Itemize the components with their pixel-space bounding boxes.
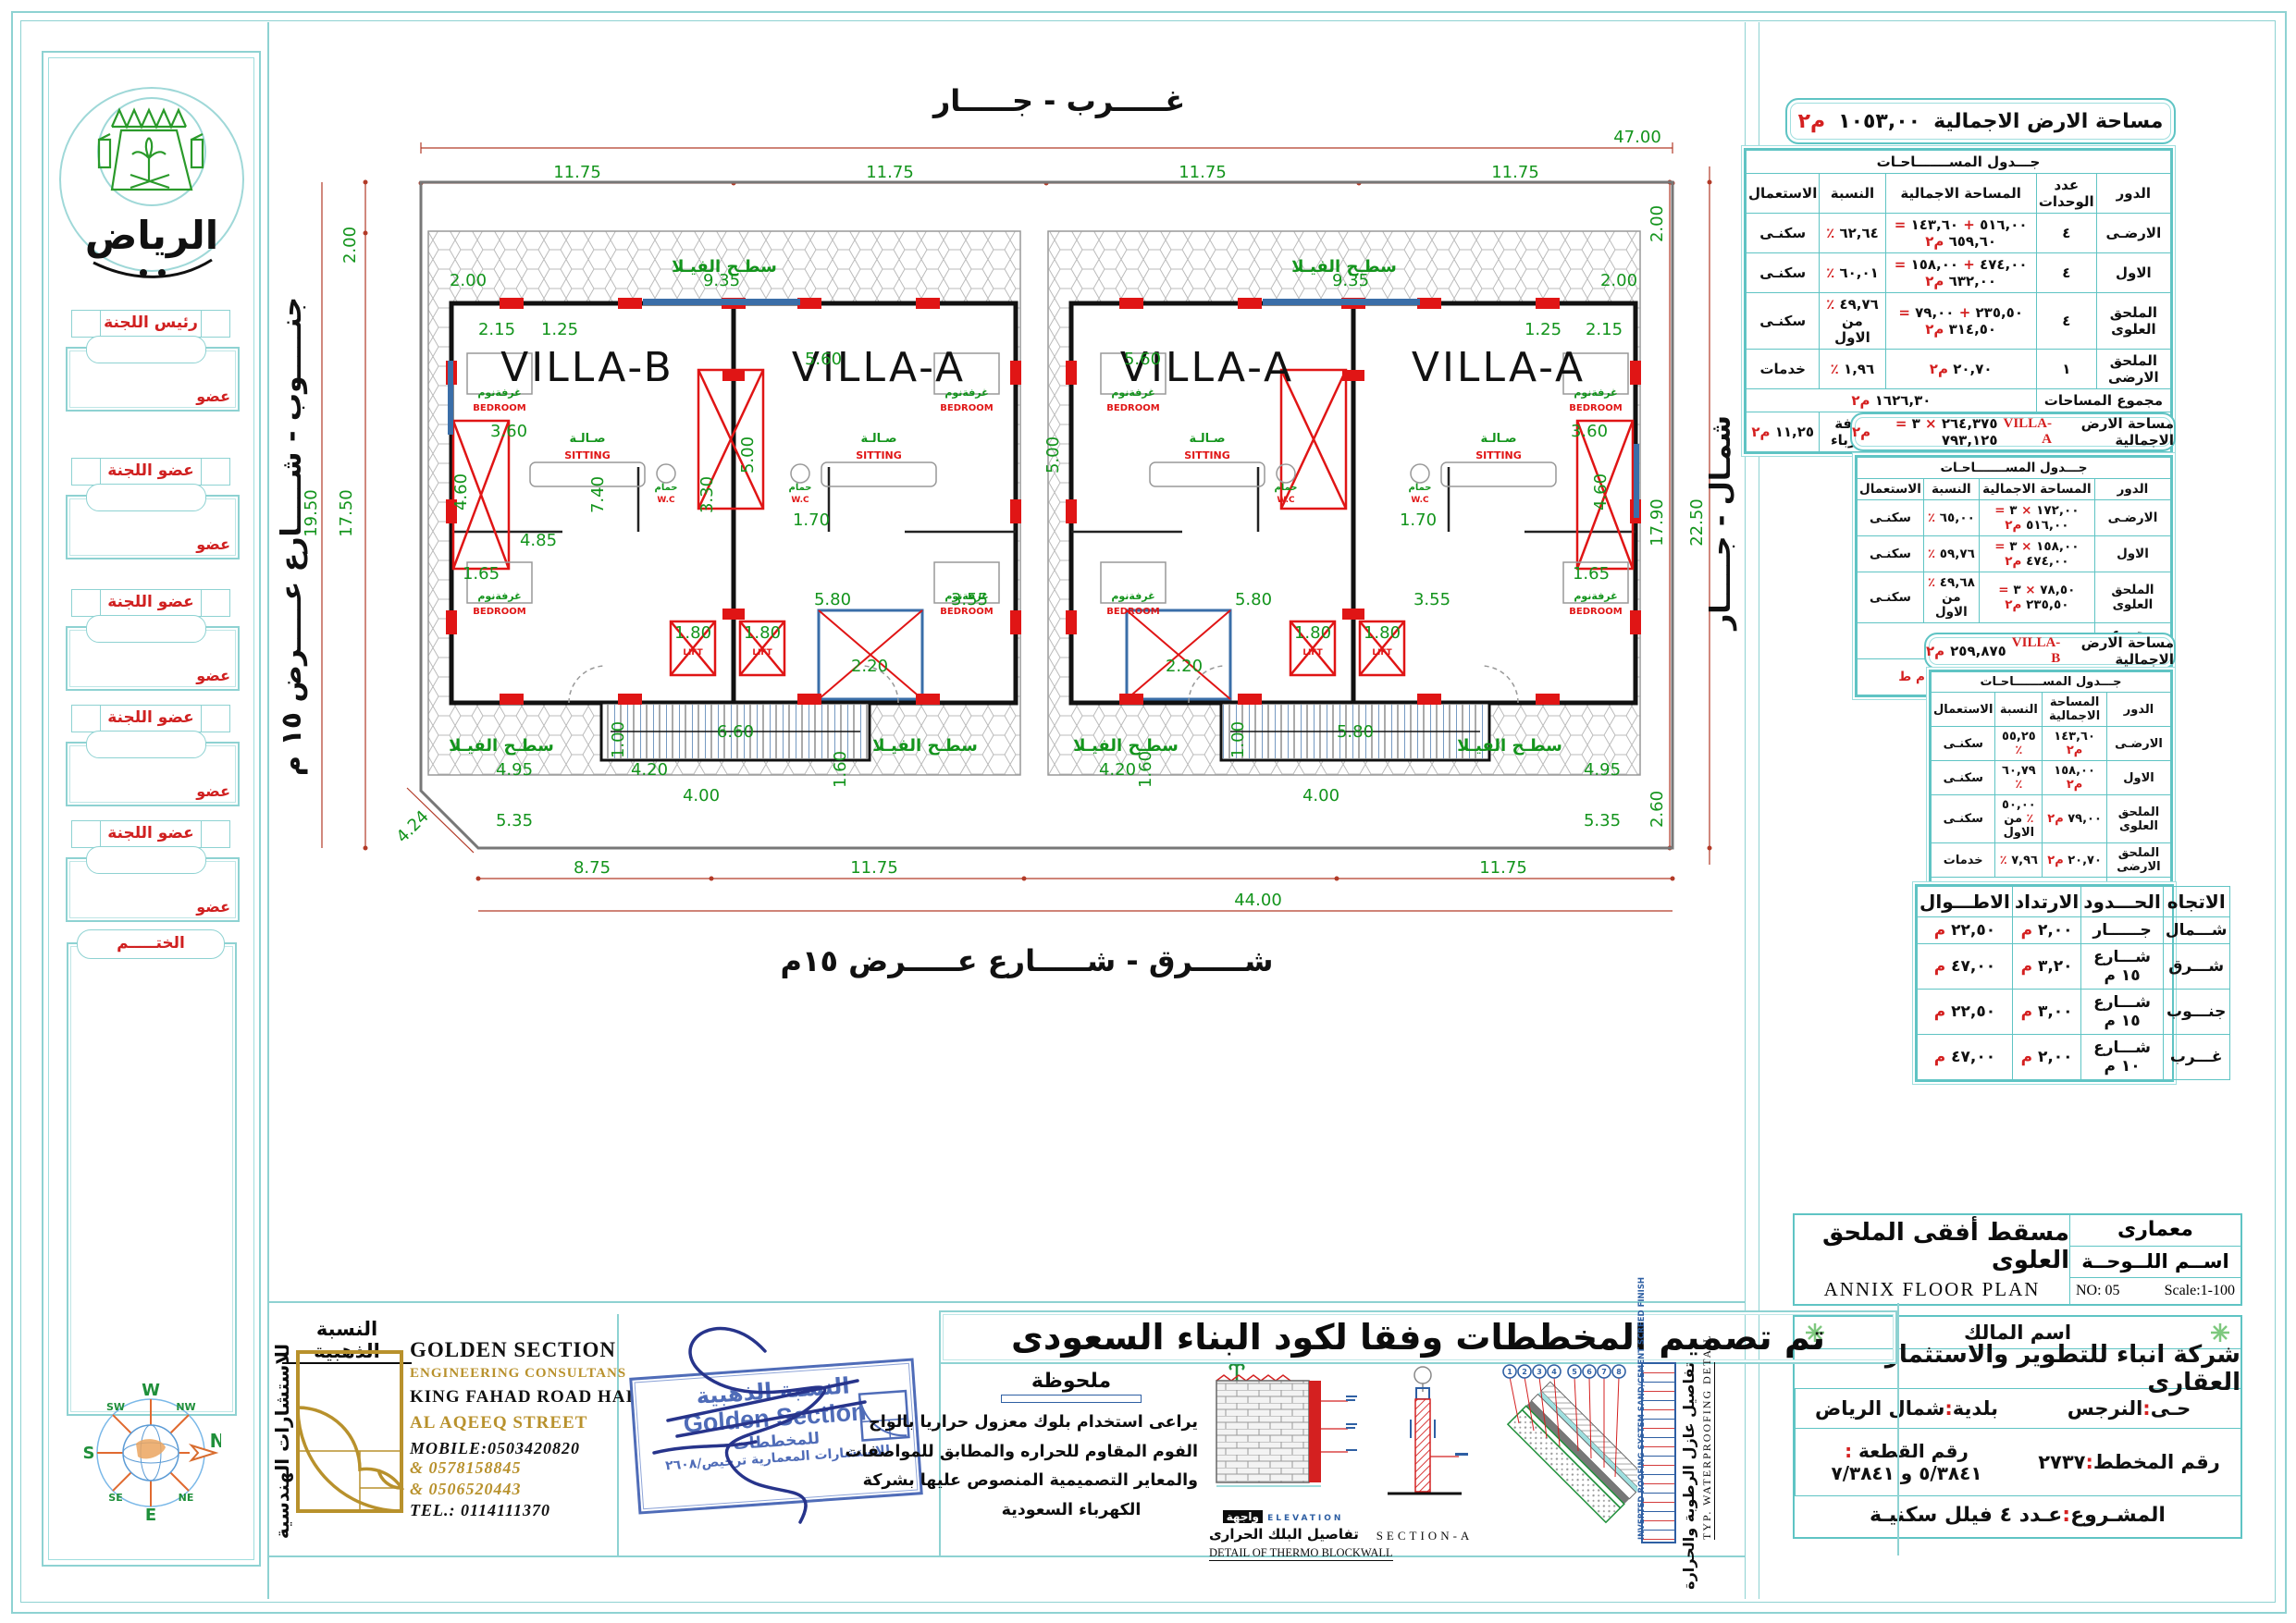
plan-annotation: SITTING	[564, 449, 611, 461]
plan-annotation: 7.40	[588, 476, 608, 513]
svg-text:4: 4	[1551, 1368, 1557, 1376]
plan-annotation: 1.80	[674, 623, 711, 643]
table-row: الملحق العلوى٧٨,٥٠ × ٣ = ٢٣٥,٥٠ م٢٤٩,٦٨ …	[1858, 572, 2171, 623]
signature-box: عضو	[66, 495, 240, 559]
plan-annotation: 6.60	[717, 722, 754, 742]
plan-annotation: غـــــرب - جـــــار	[932, 83, 1185, 118]
compass-e: E	[145, 1506, 156, 1523]
plan-annotation: 17.90	[1648, 498, 1667, 547]
plan-annotation: 1.70	[793, 510, 830, 530]
plan-annotation: 1.25	[1524, 320, 1562, 339]
note-underline	[1001, 1395, 1142, 1403]
plan-annotation: W.C	[1411, 496, 1429, 505]
plan-annotation: 3.55	[1413, 590, 1450, 609]
plan-annotation: 3.30	[697, 476, 717, 513]
approval-sidebar: الرياض رئيس اللجنة عضو عضو اللجنة عضو عض…	[42, 51, 261, 1567]
sheet-title-en: ANNIX FLOOR PLAN	[1824, 1278, 2041, 1301]
signature-box: عضو	[66, 626, 240, 691]
compass-rose-icon: W E S N NW SW SE NE	[80, 1383, 221, 1523]
firm-line-7: TEL.: 0114111370	[410, 1501, 615, 1520]
note-line: الفوم المقاوم للحراره والمطابق للمواصفات	[944, 1438, 1198, 1468]
plan-annotation: LIFT	[683, 648, 703, 658]
boundaries-table: الاتجاهالحـــدودالارتدادالاطـــوالشـــما…	[1915, 884, 2174, 1082]
plan-annotation: 11.75	[553, 163, 601, 182]
table-title-row: جـــدول المســـــــاحـات	[1932, 672, 2171, 693]
plan-annotation: 1.65	[463, 564, 500, 584]
note-line: والمعاير التصميمية المنصوص عليها بشركة	[944, 1467, 1198, 1496]
blockwall-detail: واجهة ELEVATION تفاصيل البلك الحرارى DET…	[1209, 1364, 1357, 1554]
plan-annotation: 4.20	[1099, 760, 1136, 780]
areas-table-overall: جـــدول المســـــــاحـاتالدورعدد الوحدات…	[1744, 148, 2173, 454]
plan-annotation: SITTING	[856, 449, 902, 461]
plan-annotation: حمام	[1409, 483, 1432, 493]
svg-text:3: 3	[1537, 1368, 1542, 1376]
waterproofing-detail: 1234 5678 INVERTED ROOFING SYSTEM SAND/C…	[1489, 1359, 1707, 1553]
plan-annotation: سطـح الفيـلا	[672, 257, 777, 277]
star-icon	[2210, 1322, 2230, 1343]
table-row: شـــرقشـــارع ١٥ م٣,٢٠ م٤٧,٠٠ م	[1918, 944, 2230, 990]
committee-title: عضو اللجنة	[101, 590, 201, 616]
plan-annotation: 5.60	[805, 350, 842, 369]
firm-line-3: AL AQEEQ STREET	[410, 1413, 615, 1433]
code-note-details-area: تم تصميم المخططات وفقا لكود البناء السعو…	[939, 1303, 1897, 1555]
plan-annotation: 1.60	[831, 751, 850, 788]
plan-annotation: VILLA-A	[1412, 344, 1586, 391]
villa-b-banner-name: VILLA-B	[2012, 635, 2061, 667]
riyadh-municipality-logo: الرياض	[55, 73, 249, 290]
plan-annotation: LIFT	[752, 648, 772, 658]
header-cell	[72, 311, 101, 337]
discipline-label: معمارى	[2070, 1215, 2240, 1247]
plan-annotation: 1.70	[1400, 510, 1437, 530]
plan-annotation: 22.50	[1687, 498, 1707, 547]
plan-annotation: غرفةنوم	[477, 387, 521, 399]
plan-annotation: BEDROOM	[473, 403, 525, 413]
member-label: عضو	[196, 667, 230, 684]
villa-a-banner-expr: ٢٦٤,٣٧٥ × ٣ = ٧٩٣,١٢٥	[1876, 415, 1997, 449]
note-line: الكهرباء السعودية	[944, 1496, 1198, 1526]
plan-annotation: BEDROOM	[1106, 403, 1159, 413]
plan-annotation: W.C	[1277, 496, 1295, 505]
plan-annotation: 1.00	[609, 721, 628, 758]
plan-annotation: 4.95	[496, 760, 533, 780]
committee-title: رئيس اللجنة	[101, 311, 201, 337]
plan-annotation: 1.25	[541, 320, 578, 339]
signature-box: عضو	[66, 857, 240, 922]
villa-a-area-banner: مساحة الارض الاجمالية VILLA-A ٢٦٤,٣٧٥ × …	[1850, 412, 2176, 451]
blockwall-caption-ar: تفاصيل البلك الحرارى	[1209, 1526, 1357, 1543]
table-header-row: الدورعدد الوحداتالمساحة الاجماليةالنسبةا…	[1747, 174, 2171, 214]
plan-annotation: شمـال - جـــــار	[1705, 415, 1737, 632]
compass-nw: NW	[176, 1401, 195, 1413]
plan-annotation: سطـح الفيـلا	[1073, 736, 1179, 756]
plan-annotation: 17.50	[337, 489, 356, 537]
official-seal-box	[67, 942, 237, 1416]
plan-annotation: BEDROOM	[940, 607, 993, 617]
plan-annotation: BEDROOM	[473, 607, 525, 617]
name-tab	[86, 846, 206, 874]
compass-sw: SW	[106, 1401, 125, 1413]
floor-plan-svg: غـــــرب - جـــــارشـــــرق - شـــــارع …	[278, 55, 1767, 1299]
header-cell	[201, 311, 229, 337]
plan-annotation: 11.75	[866, 163, 914, 182]
svg-text:6: 6	[1586, 1368, 1592, 1376]
firm-line-6: & 0506520443	[410, 1480, 615, 1499]
signature-box: عضو	[66, 742, 240, 806]
plan-annotation: BEDROOM	[940, 403, 993, 413]
table-header-row: الدورالمساحة الاجماليةالنسبةالاستعمال	[1858, 479, 2171, 500]
drawing-sheet: الرياض رئيس اللجنة عضو عضو اللجنة عضو عض…	[0, 0, 2296, 1623]
plan-annotation: 5.00	[1043, 436, 1063, 473]
villa-b-banner-label: مساحة الارض الاجمالية	[2066, 634, 2174, 668]
plan-annotation: 2.15	[1586, 320, 1623, 339]
table-row: الاول٤٤٧٤,٠٠ + ١٥٨,٠٠ = ٦٣٢,٠٠ م٢٦٠,٠١ ٪…	[1747, 253, 2171, 293]
villa-b-banner-unit: م٢	[1926, 643, 1944, 659]
waterproof-caption-en: TYP. WATERPROOFING DETAIL	[1700, 1362, 1715, 1540]
plan-annotation: 47.00	[1613, 128, 1661, 147]
table-row: الملحق الارضى١٢٠,٧٠ م٢١,٩٦ ٪خدمات	[1747, 350, 2171, 389]
committee-title: عضو اللجنة	[101, 821, 201, 847]
waterproofing-drawing: 1234 5678	[1489, 1359, 1637, 1543]
plan-annotation: 4.60	[1591, 473, 1611, 510]
plan-annotation: SITTING	[1184, 449, 1230, 461]
plan-annotation: صـالـة	[1189, 432, 1225, 446]
plan-annotation: 3.60	[490, 422, 527, 441]
official-seal-label: الختـــــم	[77, 929, 225, 959]
plan-annotation: 2.00	[1600, 271, 1637, 290]
name-tab	[86, 336, 206, 363]
plan-annotation: صـالـة	[1480, 432, 1516, 446]
plan-annotation: 2.20	[851, 657, 888, 676]
sheet-title-cell: مسقط أفقى الملحق العلوى ANNIX FLOOR PLAN	[1795, 1215, 2070, 1304]
plan-annotation: غرفةنوم	[477, 590, 521, 602]
plan-annotation: شـــــرق - شـــــارع عـــــرض ١٥م	[781, 943, 1274, 978]
table-header-row: الدورالمساحة الاجماليةالنسبةالاستعمال	[1932, 693, 2171, 727]
elevation-label-ar: واجهة	[1223, 1510, 1263, 1523]
table-row: الملحق العلوى٧٩,٠٠ م٢٥٠,٠٠ ٪ من الاولسكن…	[1932, 795, 2171, 843]
villa-b-area-banner: مساحة الارض الاجمالية VILLA-B ٢٥٩,٨٧٥ م٢	[1924, 633, 2176, 670]
compass-se: SE	[108, 1492, 122, 1504]
plan-annotation: 1.80	[1364, 623, 1401, 643]
note-line: يراعى استخدام بلوك معزول حراريا بالواح	[944, 1408, 1198, 1438]
bottom-strip: النسبة الذهبية للاستشارات الهندسية GOLDE…	[269, 1303, 1745, 1557]
plan-annotation: سطـح الفيـلا	[1291, 257, 1397, 277]
plan-annotation: 2.00	[450, 271, 487, 290]
plan-annotation: 19.50	[302, 489, 321, 537]
plan-annotation: 1.60	[1136, 751, 1155, 788]
plan-annotation: BEDROOM	[1569, 607, 1622, 617]
table-row: الارضـى١٤٣,٦٠ م٢٥٥,٢٥ ٪سكنـى	[1932, 727, 2171, 761]
villa-a-banner-unit: م٢	[1852, 424, 1870, 440]
villa-b-banner-expr: ٢٥٩,٨٧٥	[1950, 643, 2006, 659]
plan-annotation: 5.80	[814, 590, 851, 609]
plan-annotation: 5.35	[496, 811, 533, 830]
committee-box-member-4: عضو اللجنة عضو	[71, 820, 230, 848]
plan-annotation: غرفةنوم	[1574, 590, 1617, 602]
committee-header: رئيس اللجنة	[71, 310, 230, 338]
svg-text:5: 5	[1572, 1368, 1577, 1376]
plan-annotation: 2.00	[340, 227, 360, 264]
total-area-unit: م٢	[1798, 110, 1826, 133]
castle-emblem-icon	[99, 110, 203, 190]
plan-annotation: 1.65	[1573, 564, 1610, 584]
signature-box: عضو	[66, 347, 240, 412]
plan-annotation: 1.00	[1228, 721, 1248, 758]
total-area-value: ١٠٥٣,٠٠	[1838, 110, 1920, 133]
compass-ne: NE	[179, 1492, 194, 1504]
plan-annotation: 5.00	[738, 436, 758, 473]
plan-annotation: حمام	[789, 483, 812, 493]
plan-annotation: 5.60	[1124, 350, 1161, 369]
member-label: عضو	[196, 898, 230, 916]
table-row: مجموع المساحات١٦٢٦,٣٠ م٢	[1747, 389, 2171, 412]
firm-line-2: KING FAHAD ROAD HAI	[410, 1387, 615, 1408]
elevation-label-en: ELEVATION	[1267, 1514, 1343, 1523]
plan-annotation: W.C	[791, 496, 809, 505]
section-a-drawing	[1374, 1364, 1475, 1512]
note-title: ملحوظة	[944, 1370, 1198, 1393]
table-row: الارضـى١٧٢,٠٠ × ٣ = ٥١٦,٠٠ م٢٦٥,٠٠ ٪سكنـ…	[1858, 500, 2171, 536]
blockwall-detail-drawing	[1209, 1364, 1357, 1503]
plan-annotation: BEDROOM	[1106, 607, 1159, 617]
plan-annotation: 4.00	[683, 786, 720, 805]
svg-text:2: 2	[1522, 1368, 1527, 1376]
plan-annotation: سطـح الفيـلا	[449, 736, 554, 756]
plan-annotation: 5.80	[1235, 590, 1272, 609]
firm-block: النسبة الذهبية للاستشارات الهندسية GOLDE…	[269, 1314, 619, 1555]
svg-text:1: 1	[1507, 1368, 1512, 1376]
plan-annotation: 44.00	[1234, 891, 1282, 910]
logo-calligraphy: الرياض	[85, 213, 218, 259]
name-tab	[86, 484, 206, 511]
plan-annotation: LIFT	[1302, 648, 1323, 658]
plan-annotation: غرفةنوم	[944, 590, 988, 602]
table-title-row: جـــدول المســـــــاحـات	[1747, 151, 2171, 174]
plan-annotation: 5.80	[1337, 722, 1374, 742]
plan-annotation: 1.80	[1294, 623, 1331, 643]
name-tab	[86, 615, 206, 643]
section-a-detail: SECTION-A	[1374, 1364, 1475, 1554]
table-row: الاول١٥٨,٠٠ × ٣ = ٤٧٤,٠٠ م٢٥٩,٧٦ ٪سكنـى	[1858, 536, 2171, 572]
committee-box-member-2: عضو اللجنة عضو	[71, 589, 230, 617]
plan-annotation: 5.35	[1584, 811, 1621, 830]
svg-text:7: 7	[1601, 1368, 1607, 1376]
plan-annotation: غرفةنوم	[944, 387, 988, 399]
blockwall-caption-en: DETAIL OF THERMO BLOCKWALL	[1209, 1546, 1393, 1561]
table-row: شـــمالجــــــار٢,٠٠ م٢٢,٥٠ م	[1918, 917, 2230, 944]
plan-annotation: حمام	[655, 483, 678, 493]
sheet-name-label: اســم اللــوحــة	[2070, 1247, 2240, 1278]
plan-number: رقم المخطط : ٢٧٣٧	[2018, 1429, 2240, 1495]
committee-title: عضو اللجنة	[101, 706, 201, 732]
total-land-area-banner: مساحة الارض الاجمالية ١٠٥٣,٠٠ م٢	[1785, 98, 2176, 144]
plan-annotation: 4.24	[393, 807, 433, 847]
firm-line-0: GOLDEN SECTION	[410, 1338, 615, 1362]
compass-n: N	[210, 1430, 221, 1452]
firm-tagline-ar: للاستشارات الهندسية	[271, 1344, 293, 1545]
total-area-label: مساحة الارض الاجمالية	[1933, 110, 2163, 133]
saudi-code-banner: تم تصميم المخططات وفقا لكود البناء السعو…	[939, 1310, 1897, 1364]
plan-annotation: 8.75	[574, 858, 611, 878]
plan-annotation: 2.15	[478, 320, 515, 339]
committee-box-chairman: رئيس اللجنة عضو	[71, 310, 230, 338]
sheet-number: NO: 05	[2076, 1283, 2120, 1299]
member-label: عضو	[196, 387, 230, 405]
plan-annotation: 3.60	[1571, 422, 1608, 441]
roof-system-title: INVERTED ROOFING SYSTEM SAND/CEMENT SCRE…	[1637, 1362, 1647, 1540]
plan-annotation: 11.75	[850, 858, 898, 878]
golden-spiral-logo	[293, 1347, 406, 1516]
plan-annotation: 2.60	[1648, 791, 1667, 828]
plan-annotation: 4.60	[451, 473, 471, 510]
table-row: الملحق الارضى٢٠,٧٠ م٢٧,٩٦ ٪خدمات	[1932, 843, 2171, 878]
plan-annotation: صـالـة	[569, 432, 605, 446]
committee-box-member-3: عضو اللجنة عضو	[71, 705, 230, 732]
table-title-row: جـــدول المســـــــاحـات	[1858, 458, 2171, 479]
committee-box-member-1: عضو اللجنة عضو	[71, 458, 230, 486]
plan-annotation: غرفةنوم	[1111, 387, 1154, 399]
district: حـى : النرجس	[2018, 1389, 2240, 1428]
table-row: الارضـى٤٥١٦,٠٠ + ١٤٣,٦٠ = ٦٥٩,٦٠ م٢٦٢,٦٤…	[1747, 214, 2171, 253]
waterproof-caption-ar: تفاصيل عازل الرطوبة والحرارة	[1680, 1362, 1697, 1540]
plan-annotation: 11.75	[1491, 163, 1539, 182]
plan-annotation: 4.00	[1302, 786, 1339, 805]
plan-annotation: غرفةنوم	[1111, 590, 1154, 602]
table-header-row: الاتجاهالحـــدودالارتدادالاطـــوال	[1918, 887, 2230, 917]
plan-annotation: 11.75	[1479, 858, 1527, 878]
name-tab	[86, 731, 206, 758]
committee-title: عضو اللجنة	[101, 459, 201, 485]
plan-annotation: VILLA-B	[500, 344, 674, 391]
svg-text:8: 8	[1616, 1368, 1622, 1376]
plan-annotation: سطـح الفيـلا	[872, 736, 978, 756]
firm-line-1: ENGINEERING CONSULTANS	[410, 1366, 615, 1382]
table-row: جنـــوبشـــارع ١٥ م٣,٠٠ م٢٢,٥٠ م	[1918, 990, 2230, 1035]
plan-annotation: غرفةنوم	[1574, 387, 1617, 399]
note-block: ملحوظة يراعى استخدام بلوك معزول حراريا ب…	[944, 1370, 1198, 1525]
plan-annotation: 2.20	[1166, 657, 1203, 676]
plan-annotation: سطـح الفيـلا	[1457, 736, 1562, 756]
firm-line-4: MOBILE:0503420820	[410, 1439, 615, 1458]
plan-annotation: 4.95	[1584, 760, 1621, 780]
plan-annotation: صـالـة	[860, 432, 896, 446]
section-a-caption: SECTION-A	[1374, 1529, 1475, 1543]
plan-annotation: 1.80	[744, 623, 781, 643]
member-label: عضو	[196, 535, 230, 553]
compass-s: S	[83, 1444, 95, 1463]
plan-annotation: 2.00	[1648, 205, 1667, 242]
table-row: الاول١٥٨,٠٠ م٢٦٠,٧٩ ٪سكنـى	[1932, 761, 2171, 795]
plan-annotation: BEDROOM	[1569, 403, 1622, 413]
plan-annotation: SITTING	[1475, 449, 1522, 461]
plan-annotation: 4.20	[631, 760, 668, 780]
floor-plan-area: غـــــرب - جـــــارشـــــرق - شـــــارع …	[278, 55, 1767, 1299]
sheet-title-ar: مسقط أفقى الملحق العلوى	[1795, 1219, 2069, 1274]
member-label: عضو	[196, 782, 230, 800]
villa-a-banner-label: مساحة الارض الاجمالية	[2057, 415, 2174, 449]
villa-a-banner-name: VILLA-A	[2004, 416, 2053, 448]
firm-line-5: & 0578158845	[410, 1458, 615, 1478]
plan-annotation: LIFT	[1372, 648, 1392, 658]
table-row: غـــربشـــارع ١٠ م٢,٠٠ م٤٧,٠٠ م	[1918, 1035, 2230, 1080]
plan-annotation: 4.85	[520, 531, 557, 550]
plan-annotation: W.C	[657, 496, 675, 505]
compass-w: W	[142, 1383, 160, 1400]
plan-annotation: حمام	[1275, 483, 1298, 493]
sheet-scale: Scale:1-100	[2165, 1283, 2235, 1299]
plan-annotation: 11.75	[1179, 163, 1227, 182]
sheet-title-block: مسقط أفقى الملحق العلوى ANNIX FLOOR PLAN…	[1793, 1213, 2242, 1306]
table-row: الملحق العلوى٤٢٣٥,٥٠ + ٧٩,٠٠ = ٣١٤,٥٠ م٢…	[1747, 293, 2171, 350]
